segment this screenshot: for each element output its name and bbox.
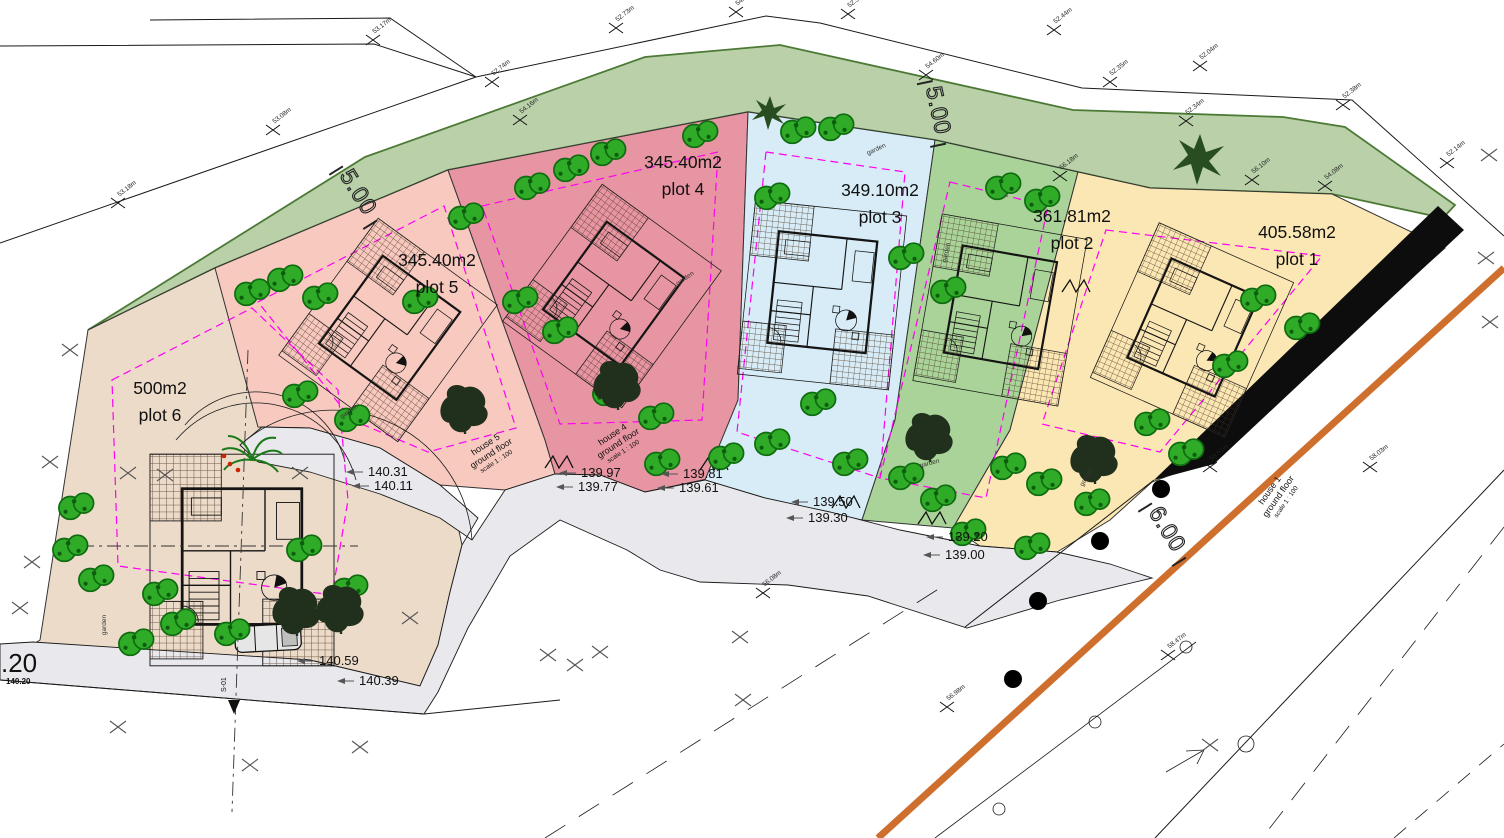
survey-cross-glyph [609, 23, 623, 33]
plot-2-name-label: plot 2 [1051, 233, 1094, 253]
survey-cross-glyph [1440, 158, 1454, 168]
plot-3-name-label: plot 3 [859, 207, 902, 227]
boundary-cross-icon [592, 646, 608, 658]
survey-cross-label: 52.35m [1108, 58, 1129, 77]
survey-cross-glyph [1161, 650, 1175, 660]
survey-cross-label: 52.73m [614, 4, 635, 23]
road-level-label: 139.61 [679, 480, 719, 495]
survey-cross: 58.47m [1161, 631, 1188, 660]
site-plan-canvas: 53.17m53.18m53.08m52.74m52.73m54.82m52.5… [0, 0, 1504, 838]
boundary-cross-icon [735, 694, 751, 706]
section-marker-label: S-01 [221, 677, 228, 692]
road-level-label: 139.81 [683, 466, 723, 481]
plot-2-area-label: 361.81m2 [1033, 206, 1111, 226]
survey-cross-label: 52.50m [846, 0, 867, 9]
survey-cross-label: 52.44m [1052, 6, 1073, 25]
boundary-cross-icon [567, 659, 583, 671]
survey-cross-label: 52.04m [1198, 42, 1219, 61]
survey-cross: 52.73m [609, 4, 636, 33]
survey-cross-glyph [940, 702, 954, 712]
manhole-circle [993, 803, 1005, 815]
survey-cross: 52.50m [841, 0, 868, 19]
survey-cross-glyph [841, 9, 855, 19]
boundary-cross-icon [42, 456, 58, 468]
survey-cross-label: 58.03m [1368, 443, 1389, 462]
boundary-cross-icon [540, 649, 556, 661]
plot-5-area-label: 345.40m2 [398, 250, 476, 270]
garden-label: garden [101, 615, 108, 636]
road-level-label: 140.59 [319, 653, 359, 668]
survey-cross-glyph [1336, 100, 1350, 110]
plot-1-area-label: 405.58m2 [1258, 222, 1336, 242]
survey-cross-label: 54.82m [734, 0, 755, 7]
plot-3-area-label: 349.10m2 [841, 180, 919, 200]
survey-cross: 53.17m [366, 16, 393, 45]
boundary-cross-icon [24, 556, 40, 568]
survey-cross: 53.18m [111, 179, 138, 208]
survey-cross-label: 56.98m [945, 683, 966, 702]
boundary-cross-icon [1482, 316, 1498, 328]
survey-cross: 52.35m [1103, 58, 1130, 87]
road-level-label: 140.31 [368, 464, 408, 479]
boundary-cross-icon [1481, 149, 1497, 161]
plot-5-name-label: plot 5 [416, 277, 459, 297]
survey-cross: 56.98m [940, 683, 967, 712]
road-level-label: 139.97 [581, 465, 621, 480]
section-arrow [228, 700, 240, 714]
survey-cross: 52.14m [1440, 139, 1467, 168]
survey-cross-glyph [1047, 25, 1061, 35]
survey-cross-glyph [756, 588, 770, 598]
survey-cross-glyph [111, 198, 125, 208]
boundary-cross-icon [110, 721, 126, 733]
site-plan-drawing: 53.17m53.18m53.08m52.74m52.73m54.82m52.5… [0, 0, 1504, 838]
boundary-cross-icon [242, 759, 258, 771]
road-level-label: 140.11 [374, 478, 413, 493]
survey-cross: 52.74m [485, 58, 512, 87]
survey-cross: 54.60m [919, 51, 946, 80]
road-level-label: 139.50 [813, 494, 853, 509]
boundary-cross-icon [1478, 252, 1494, 264]
survey-cross-glyph [1363, 462, 1377, 472]
survey-cross-glyph [729, 7, 743, 17]
manhole-circle [1180, 641, 1192, 653]
edge-level-label: .20 [1, 648, 37, 678]
plot-4-name-label: plot 4 [662, 179, 705, 199]
survey-cross: 58.03m [1363, 443, 1390, 472]
road-level-label: 139.30 [808, 510, 848, 525]
survey-cross: 53.08m [266, 106, 293, 135]
road-level-label: 140.39 [359, 673, 399, 688]
survey-cross: 52.04m [1193, 42, 1220, 71]
dimension-label: 6.00 [1144, 501, 1192, 556]
survey-cross-label: 52.14m [1445, 139, 1466, 158]
survey-cross-label: 53.18m [116, 179, 137, 198]
boundary-cross-icon [352, 741, 368, 753]
survey-cross-label: 53.17m [371, 16, 392, 35]
survey-cross-label: 52.74m [490, 58, 511, 77]
survey-cross-label: 54.60m [924, 51, 945, 70]
survey-cross: 54.82m [729, 0, 756, 17]
road-level-label: 139.20 [948, 529, 988, 544]
plot-6-name-label: plot 6 [139, 405, 182, 425]
plot-4-area-label: 345.40m2 [644, 152, 722, 172]
survey-cross-label: 53.08m [271, 106, 292, 125]
survey-cross-label: 52.38m [1341, 81, 1362, 100]
survey-cross-glyph [366, 35, 380, 45]
survey-cross-glyph [266, 125, 280, 135]
boundary-cross-icon [1202, 739, 1218, 751]
boundary-cross-icon [732, 631, 748, 643]
road-level-label: 139.77 [578, 479, 618, 494]
edge-level-label-small: 140.20 [6, 677, 31, 686]
boundary-cross-icon [12, 602, 28, 614]
survey-cross-glyph [1193, 61, 1207, 71]
survey-cross-glyph [485, 77, 499, 87]
boundary-cross-icon [62, 344, 78, 356]
manhole-circle [1238, 736, 1254, 752]
survey-cross-glyph [1103, 77, 1117, 87]
plot-1-name-label: plot 1 [1276, 249, 1319, 269]
plot-6-area-label: 500m2 [133, 378, 187, 398]
road-level-label: 139.00 [945, 547, 985, 562]
survey-cross: 52.44m [1047, 6, 1074, 35]
